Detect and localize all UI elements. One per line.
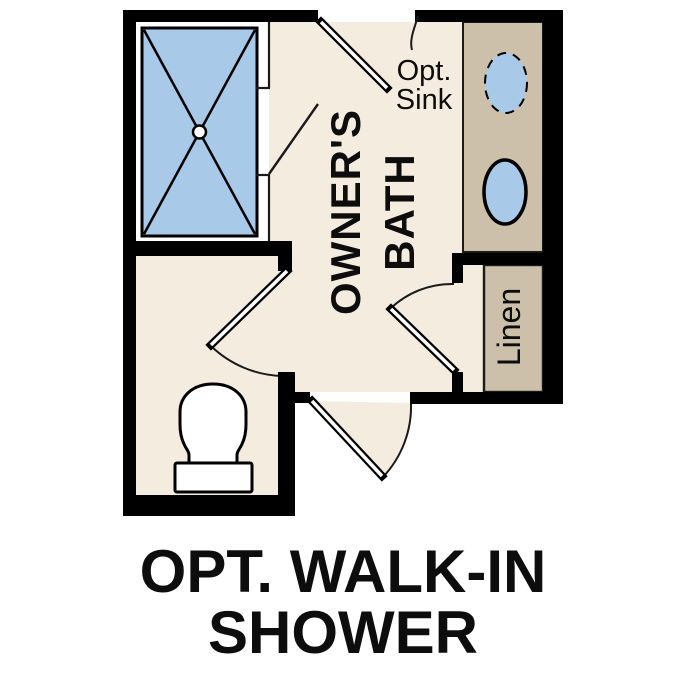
wall-top-left	[123, 10, 318, 22]
room-label-line2: BATH	[376, 153, 423, 271]
wall-bottom-exterior	[123, 495, 292, 516]
wall-vanity-linen-divider	[452, 253, 563, 265]
sink-icon	[484, 160, 526, 224]
floor-plan-figure: OWNER'S BATH Linen Opt. Sink OPT. WALK-I…	[0, 0, 687, 687]
wall-toilet-right	[278, 372, 295, 516]
hall-door-top-jamb	[452, 265, 463, 283]
toilet-bowl	[180, 384, 246, 464]
caption-line2: SHOWER	[208, 599, 478, 666]
svg-text:Linen: Linen	[491, 288, 527, 366]
toilet-icon	[175, 384, 252, 492]
opt-sink-label-line2: Sink	[396, 84, 453, 116]
room-label-line1: OWNER'S	[322, 109, 369, 315]
caption-line1: OPT. WALK-IN	[140, 538, 547, 605]
wall-under-shower	[123, 241, 292, 256]
wall-left	[123, 10, 136, 516]
wall-right	[543, 10, 563, 404]
optional-sink-icon	[485, 53, 527, 113]
linen-label: Linen	[491, 288, 527, 366]
floor-plan-svg: OWNER'S BATH Linen Opt. Sink OPT. WALK-I…	[0, 0, 687, 687]
opt-sink-label-line1: Opt.	[397, 55, 452, 87]
wall-top-right	[415, 10, 563, 22]
toilet-tank	[175, 463, 252, 492]
wall-bath-bottom	[410, 392, 563, 404]
shower-drain-icon	[193, 126, 206, 139]
